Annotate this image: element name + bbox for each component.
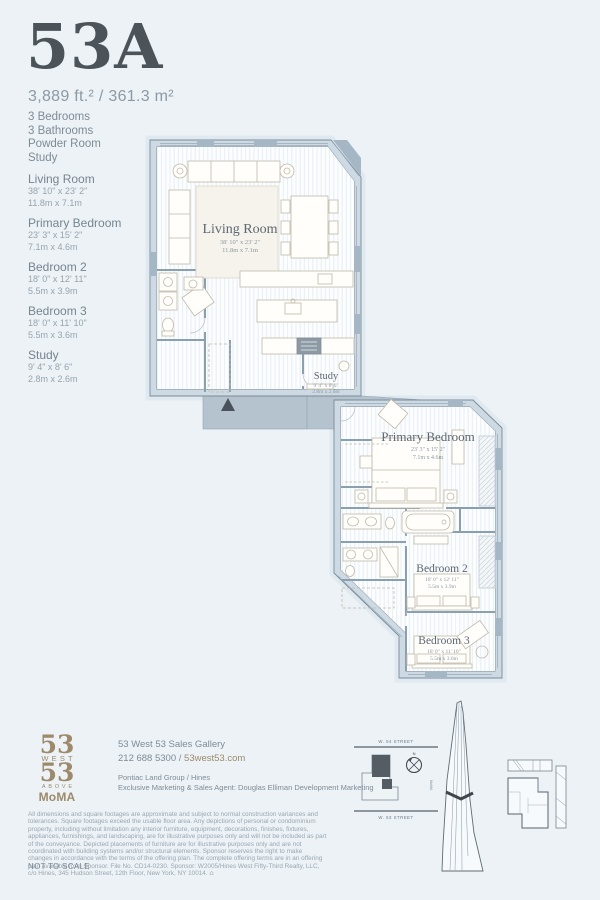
compass-icon: N: [407, 751, 422, 773]
website-link[interactable]: 53west53.com: [184, 753, 245, 764]
page-title: 53A: [26, 16, 163, 78]
room-name: Bedroom 3: [28, 304, 121, 318]
living-room-label: Living Room: [202, 222, 277, 237]
logo-53-bottom: 53: [27, 763, 87, 782]
room-dim-imperial: 18' 0" x 11' 10": [28, 318, 121, 330]
not-to-scale-note: NOT TO SCALE: [28, 862, 90, 871]
list-item: Bedroom 2 18' 0" x 12' 11" 5.5m x 3.9m: [28, 260, 121, 297]
contact-separator: /: [176, 753, 184, 764]
street-label-top: W. 54 STREET: [378, 739, 413, 744]
contact-block: 53 West 53 Sales Gallery 212 688 5300 / …: [118, 738, 374, 793]
feature-study: Study: [28, 152, 101, 166]
bedroom3-dim-metric: 5.5m x 3.6m: [430, 656, 459, 662]
list-item: Primary Bedroom 23' 3" x 15' 2" 7.1m x 4…: [28, 216, 121, 253]
bedroom3-label: Bedroom 3: [418, 635, 470, 647]
feature-powder-room: Powder Room: [28, 138, 101, 152]
site-map-east-label: MoMA: [429, 780, 433, 791]
room-name: Primary Bedroom: [28, 216, 121, 230]
bedroom3-dim-imperial: 18' 0" x 11' 10": [427, 649, 461, 655]
phone-number: 212 688 5300: [118, 753, 176, 764]
bedroom2-label: Bedroom 2: [416, 563, 468, 575]
primary-bedroom-dim-imperial: 23' 3" x 15' 2": [411, 447, 446, 453]
room-dim-metric: 11.8m x 7.1m: [28, 198, 121, 210]
compass-north-label: N: [413, 751, 416, 756]
living-room-dim-metric: 11.8m x 7.1m: [222, 247, 258, 254]
list-item: Study 9' 4" x 8' 6" 2.8m x 2.6m: [28, 348, 121, 385]
unit-area: 3,889 ft.² / 361.3 m²: [28, 88, 174, 106]
list-item: Bedroom 3 18' 0" x 11' 10" 5.5m x 3.6m: [28, 304, 121, 341]
contact-line: 212 688 5300 / 53west53.com: [118, 752, 374, 766]
room-name: Bedroom 2: [28, 260, 121, 274]
bedroom2-dim-imperial: 18' 0" x 12' 11": [425, 577, 459, 583]
logo-53-top: 53: [27, 735, 87, 754]
study-dim-metric: 2.8m x 2.6m: [312, 389, 340, 395]
room-name: Study: [28, 348, 121, 362]
room-name: Living Room: [28, 172, 121, 186]
room-dim-metric: 5.5m x 3.9m: [28, 286, 121, 298]
room-dim-imperial: 38' 10" x 23' 2": [28, 186, 121, 198]
study-label: Study: [314, 371, 339, 382]
sales-gallery-name: 53 West 53 Sales Gallery: [118, 738, 374, 752]
room-dim-imperial: 18' 0" x 12' 11": [28, 274, 121, 286]
developer-line: Pontiac Land Group / Hines: [118, 773, 374, 783]
room-dim-metric: 5.5m x 3.6m: [28, 330, 121, 342]
street-label-bottom: W. 53 STREET: [378, 815, 413, 820]
floor-key-plan: [508, 760, 566, 828]
equal-housing-icon: ⌂: [209, 870, 213, 877]
room-dim-metric: 7.1m x 4.6m: [28, 242, 121, 254]
room-dimension-list: Living Room 38' 10" x 23' 2" 11.8m x 7.1…: [28, 172, 121, 392]
agent-line: Exclusive Marketing & Sales Agent: Dougl…: [118, 783, 374, 793]
living-room-dim-imperial: 38' 10" x 23' 2": [220, 239, 260, 246]
bedroom2-dim-metric: 5.5m x 3.9m: [428, 584, 457, 590]
list-item: Living Room 38' 10" x 23' 2" 11.8m x 7.1…: [28, 172, 121, 209]
53w53-logo: 53 WEST 53 ABOVE MoMA: [27, 735, 87, 804]
logo-moma: MoMA: [27, 791, 87, 804]
room-dim-imperial: 23' 3" x 15' 2": [28, 230, 121, 242]
feature-bathrooms: 3 Bathrooms: [28, 125, 101, 139]
building-silhouette: [442, 701, 483, 871]
primary-bedroom-label: Primary Bedroom: [381, 429, 475, 444]
primary-bedroom-dim-metric: 7.1m x 4.6m: [413, 455, 444, 461]
unit-features: 3 Bedrooms 3 Bathrooms Powder Room Study: [28, 111, 101, 165]
room-dim-imperial: 9' 4" x 8' 6": [28, 362, 121, 374]
room-dim-metric: 2.8m x 2.6m: [28, 374, 121, 386]
feature-bedrooms: 3 Bedrooms: [28, 111, 101, 125]
